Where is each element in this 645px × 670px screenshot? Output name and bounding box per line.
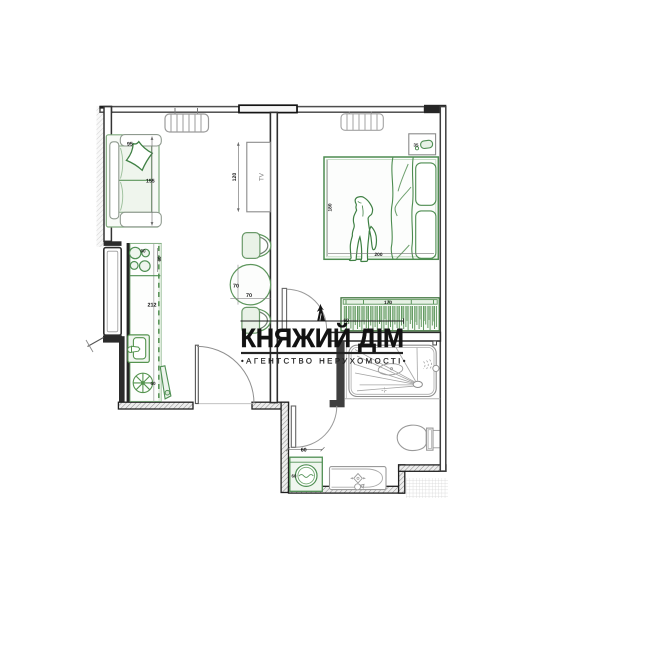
svg-text:120: 120 bbox=[232, 173, 238, 182]
svg-text:180: 180 bbox=[328, 203, 334, 211]
svg-text:TV: TV bbox=[259, 172, 266, 181]
svg-text:60: 60 bbox=[141, 248, 147, 253]
svg-text:КНЯЖИЙ ДІМ: КНЯЖИЙ ДІМ bbox=[241, 323, 404, 353]
svg-text:212: 212 bbox=[148, 302, 157, 308]
svg-text:60: 60 bbox=[157, 256, 162, 262]
svg-text:170: 170 bbox=[384, 300, 392, 306]
svg-text:95: 95 bbox=[127, 142, 133, 148]
svg-text:70: 70 bbox=[233, 284, 239, 290]
svg-text:60: 60 bbox=[301, 448, 307, 454]
svg-text:70: 70 bbox=[246, 293, 252, 299]
svg-text:60: 60 bbox=[292, 474, 297, 479]
svg-text:35: 35 bbox=[414, 142, 419, 147]
svg-text:60: 60 bbox=[151, 381, 157, 386]
svg-text:155: 155 bbox=[146, 178, 155, 184]
svg-text:200: 200 bbox=[375, 252, 383, 258]
